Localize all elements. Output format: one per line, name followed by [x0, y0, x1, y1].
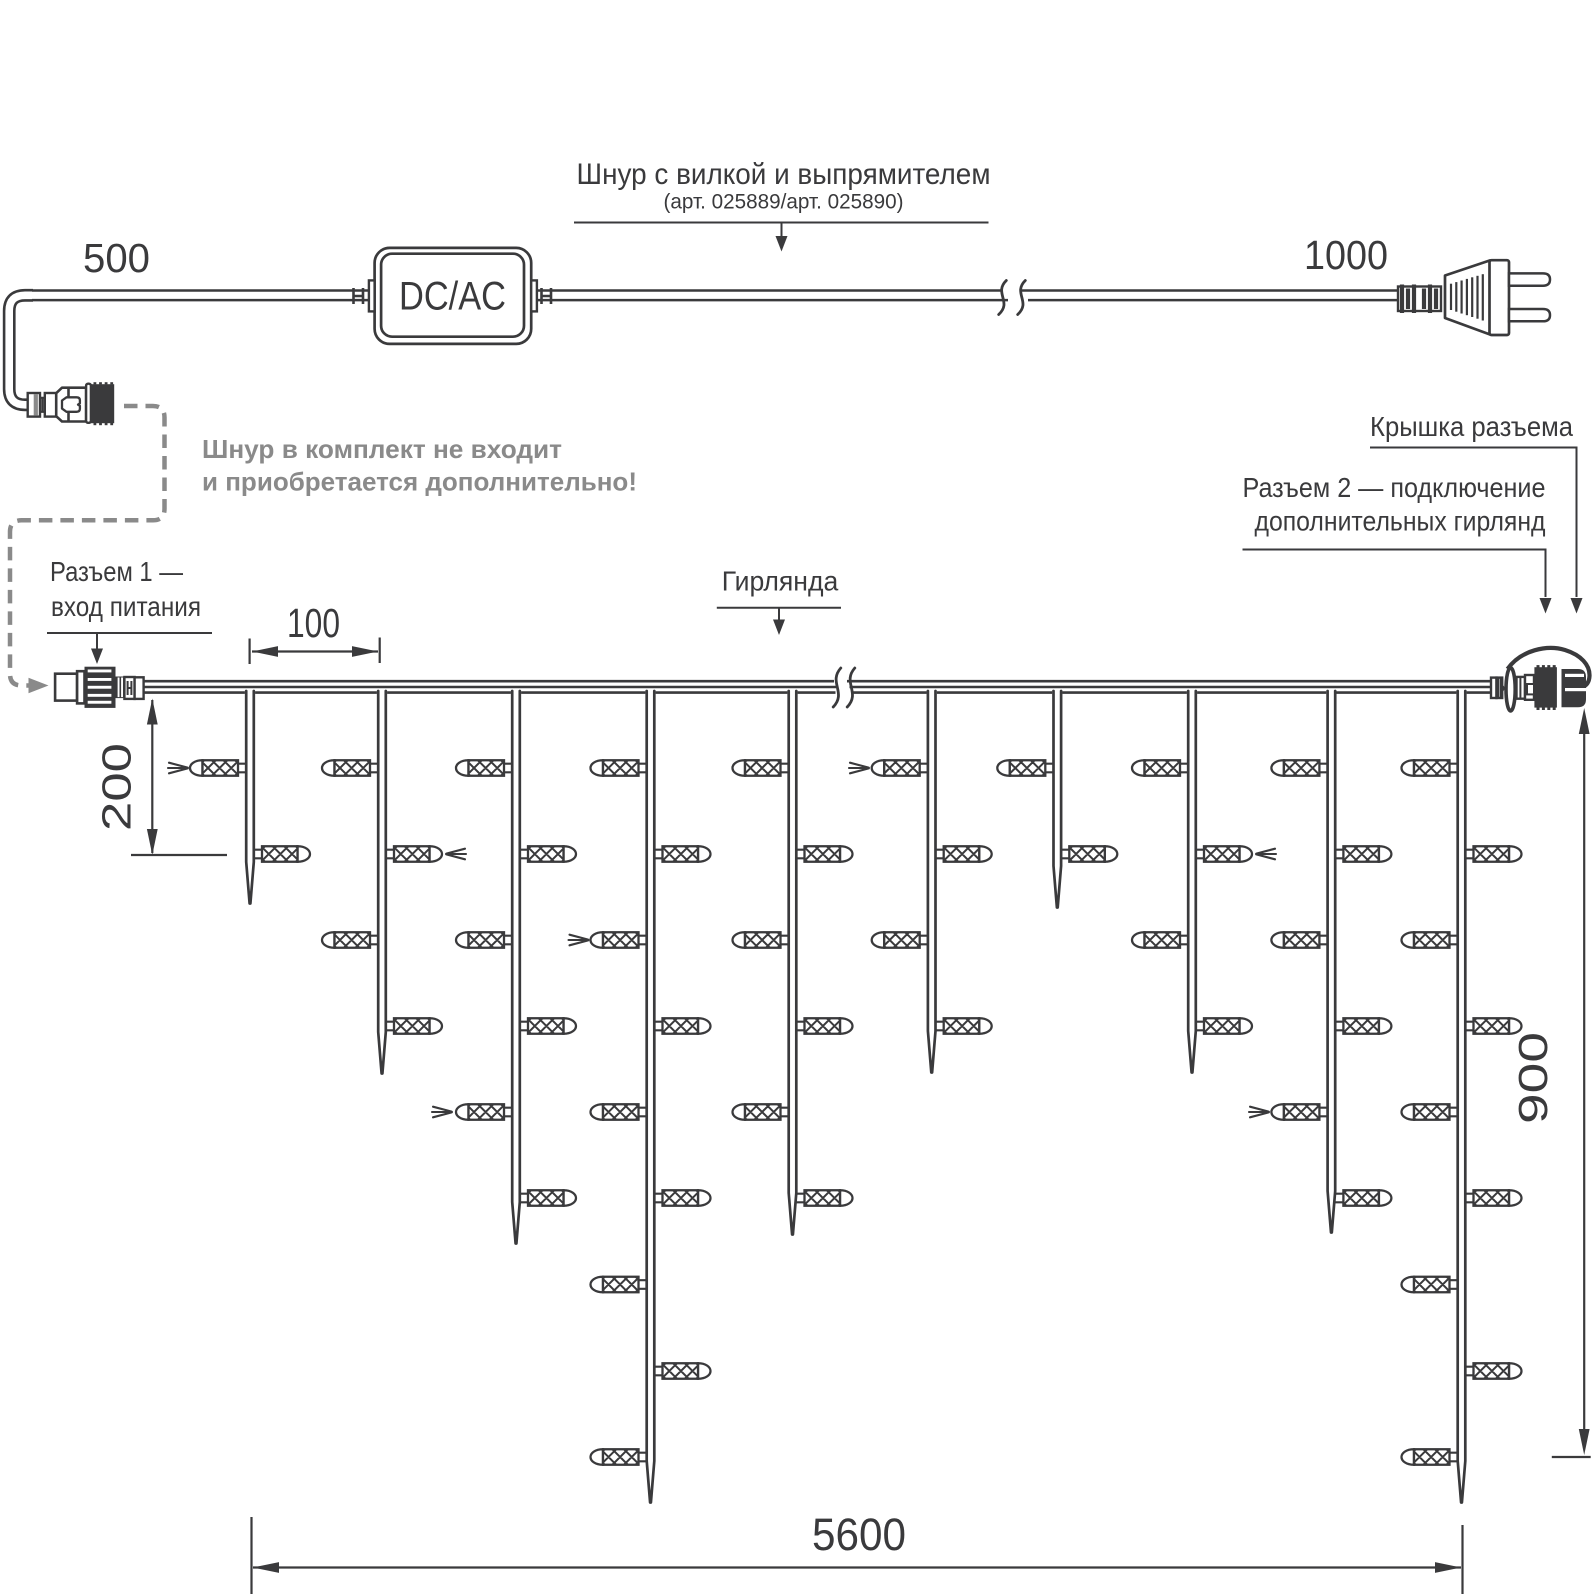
svg-text:DC/AC: DC/AC [399, 275, 506, 319]
svg-text:Шнур с вилкой и выпрямителем: Шнур с вилкой и выпрямителем [577, 158, 991, 191]
svg-text:вход питания: вход питания [51, 591, 201, 622]
svg-text:100: 100 [287, 600, 340, 646]
svg-text:5600: 5600 [812, 1509, 906, 1560]
svg-text:Гирлянда: Гирлянда [722, 566, 839, 597]
svg-text:Крышка разъема: Крышка разъема [1370, 411, 1573, 442]
svg-text:дополнительных гирлянд: дополнительных гирлянд [1255, 506, 1546, 537]
svg-text:900: 900 [1510, 1032, 1556, 1124]
svg-text:500: 500 [83, 235, 150, 281]
svg-text:(арт. 025889/арт. 025890): (арт. 025889/арт. 025890) [664, 191, 904, 214]
svg-text:и приобретается дополнительно!: и приобретается дополнительно! [202, 467, 637, 497]
svg-text:200: 200 [94, 743, 140, 831]
svg-text:1000: 1000 [1304, 232, 1388, 278]
svg-text:Шнур в комплект не входит: Шнур в комплект не входит [202, 434, 562, 464]
svg-text:Разъем 2 — подключение: Разъем 2 — подключение [1243, 472, 1546, 503]
svg-text:Разъем 1 —: Разъем 1 — [50, 556, 183, 587]
